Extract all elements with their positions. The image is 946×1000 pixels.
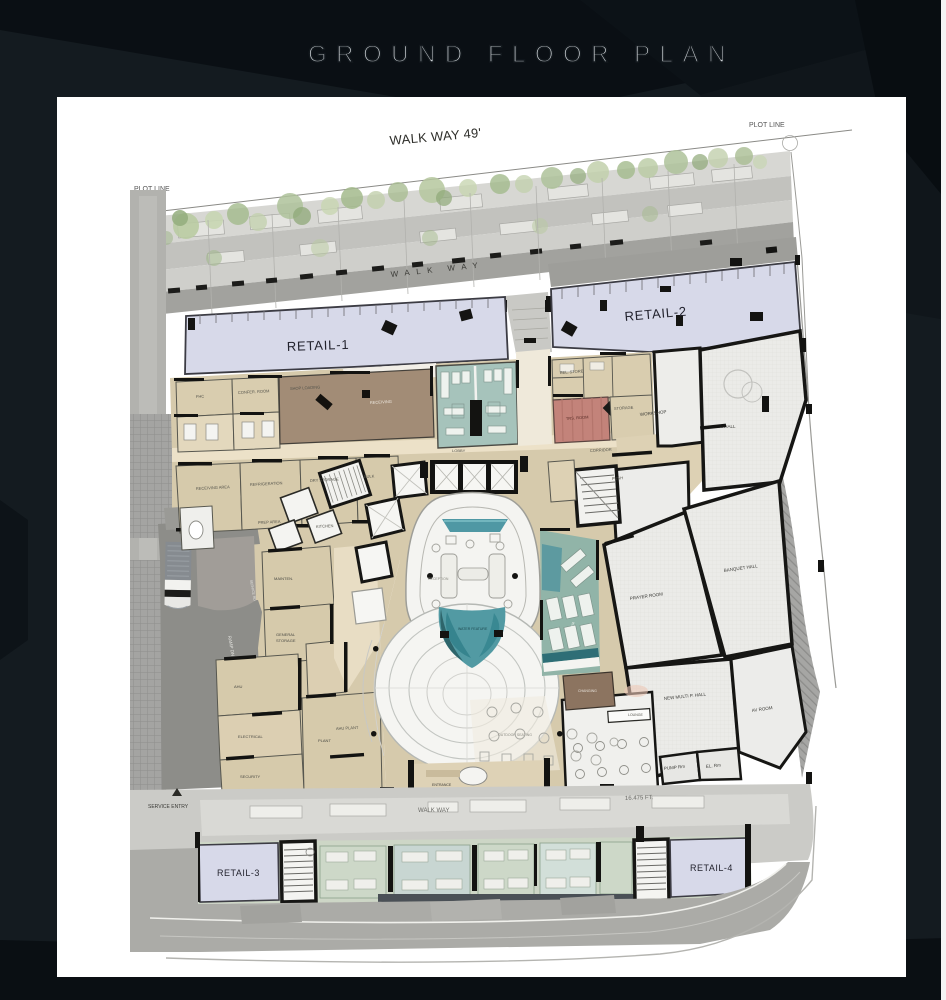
svg-text:RETAIL-3: RETAIL-3 (217, 868, 260, 878)
svg-text:GROUND FLOOR PLAN: GROUND FLOOR PLAN (308, 41, 735, 68)
svg-text:LOBBY: LOBBY (452, 448, 466, 453)
svg-text:AHU: AHU (234, 684, 243, 689)
svg-text:CHANGING: CHANGING (578, 689, 597, 693)
svg-text:16.475 FT.: 16.475 FT. (625, 795, 654, 802)
svg-text:SECURITY: SECURITY (240, 774, 261, 779)
svg-text:WATER FEATURE: WATER FEATURE (458, 627, 488, 631)
svg-text:GENERAL: GENERAL (276, 632, 296, 637)
svg-text:STORAGE: STORAGE (276, 638, 296, 643)
svg-text:BULK: BULK (364, 473, 375, 479)
svg-text:PLOT LINE: PLOT LINE (749, 122, 785, 129)
svg-text:FHC: FHC (196, 394, 205, 399)
svg-text:ELECTRICAL: ELECTRICAL (238, 734, 263, 739)
svg-text:LOUNGE: LOUNGE (628, 713, 643, 717)
svg-text:PUSH: PUSH (612, 475, 624, 481)
svg-text:MAINTEN.: MAINTEN. (274, 576, 293, 581)
svg-text:PLANT: PLANT (318, 738, 331, 743)
svg-text:OUTDOOR SEATING: OUTDOOR SEATING (498, 733, 532, 737)
svg-text:ENTRANCE: ENTRANCE (432, 783, 452, 787)
svg-text:RETAIL-4: RETAIL-4 (690, 863, 733, 873)
svg-text:KITCHEN: KITCHEN (316, 523, 334, 529)
svg-text:RETAIL-1: RETAIL-1 (287, 337, 350, 354)
svg-text:RECEPTION: RECEPTION (428, 577, 449, 581)
svg-text:WALK WAY: WALK WAY (418, 808, 449, 814)
svg-text:SERVICE ENTRY: SERVICE ENTRY (148, 804, 189, 810)
